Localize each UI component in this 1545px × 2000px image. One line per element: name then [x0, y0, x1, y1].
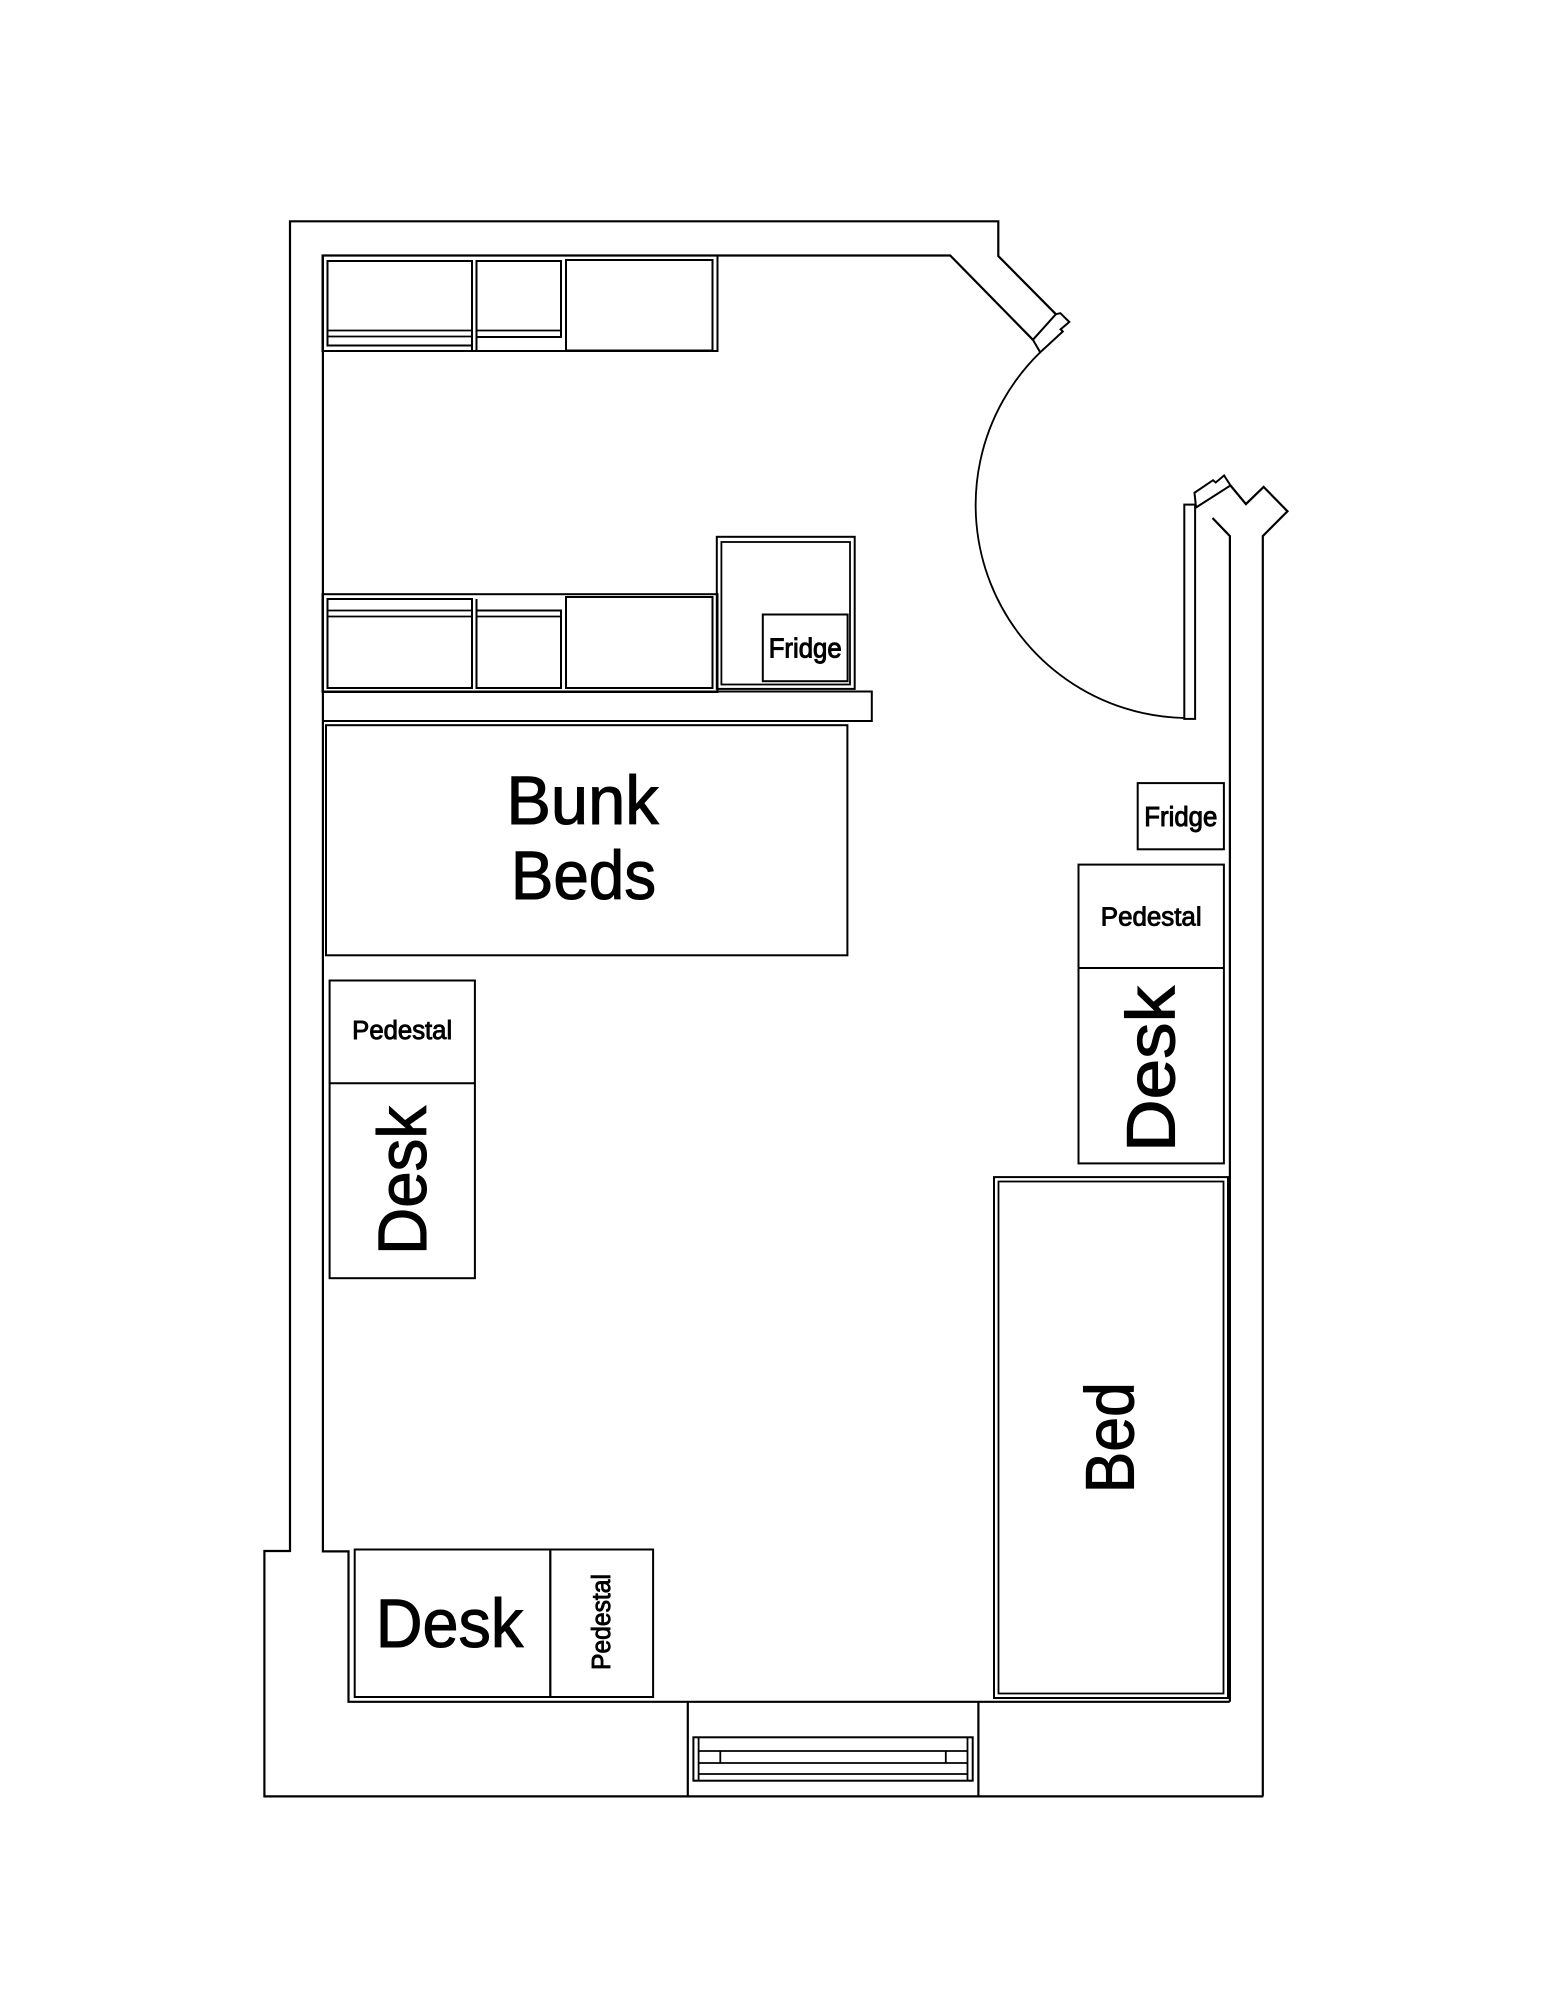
svg-text:Pedestal: Pedestal: [1101, 903, 1202, 931]
svg-text:Desk: Desk: [364, 1106, 441, 1255]
svg-text:Beds: Beds: [511, 837, 656, 914]
svg-text:Pedestal: Pedestal: [588, 1574, 616, 1670]
svg-text:Desk: Desk: [1113, 985, 1190, 1152]
svg-text:Pedestal: Pedestal: [352, 1017, 452, 1045]
svg-text:Bunk: Bunk: [506, 762, 659, 839]
svg-text:Fridge: Fridge: [769, 633, 842, 664]
svg-text:Fridge: Fridge: [1144, 801, 1217, 832]
svg-text:Bed: Bed: [1072, 1382, 1149, 1493]
svg-text:Desk: Desk: [376, 1585, 524, 1662]
